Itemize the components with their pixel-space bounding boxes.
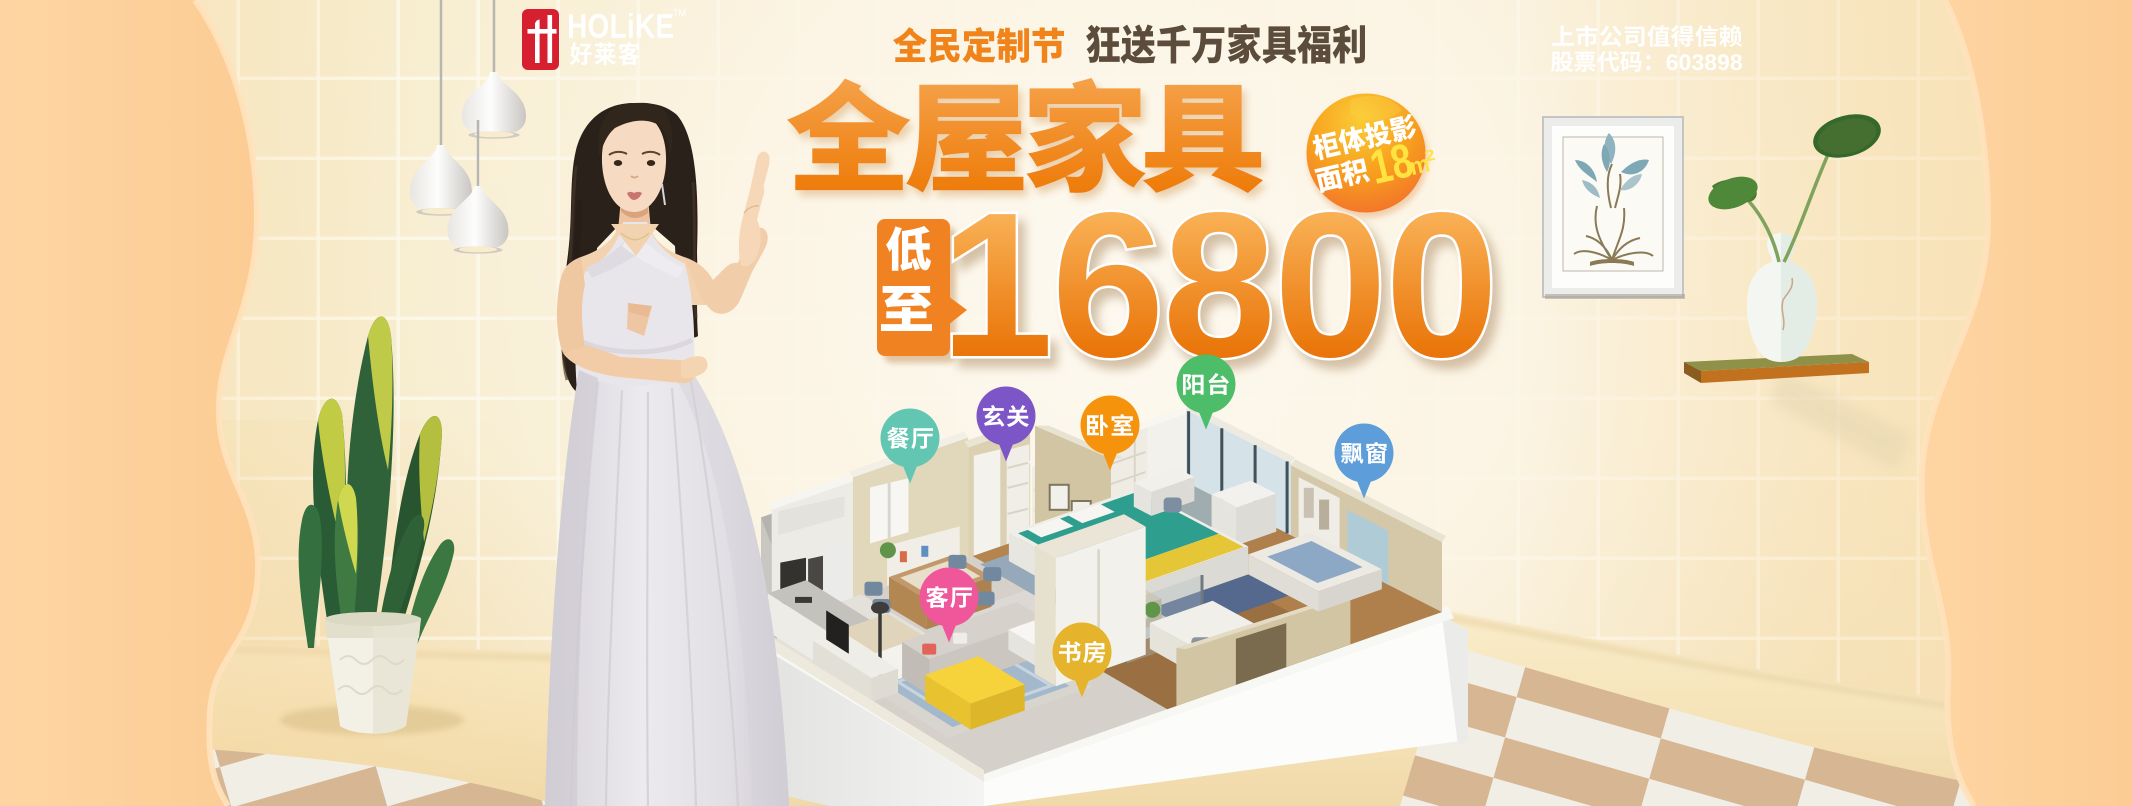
svg-text:TM: TM [673, 8, 686, 18]
